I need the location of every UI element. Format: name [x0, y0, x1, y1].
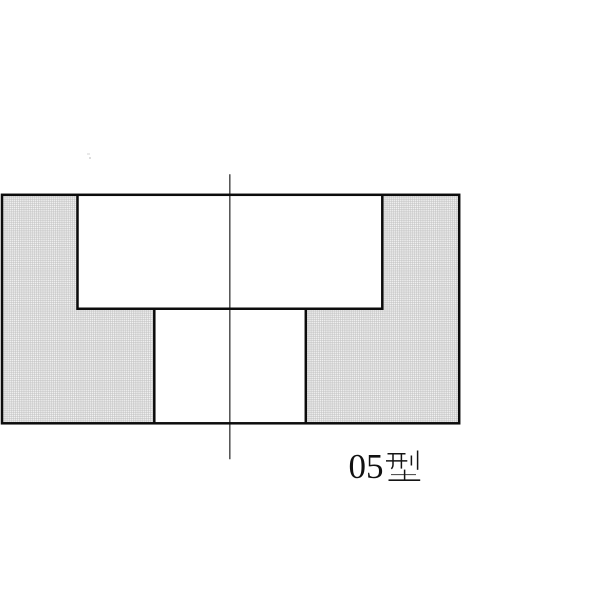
- svg-text:05: 05: [349, 447, 384, 486]
